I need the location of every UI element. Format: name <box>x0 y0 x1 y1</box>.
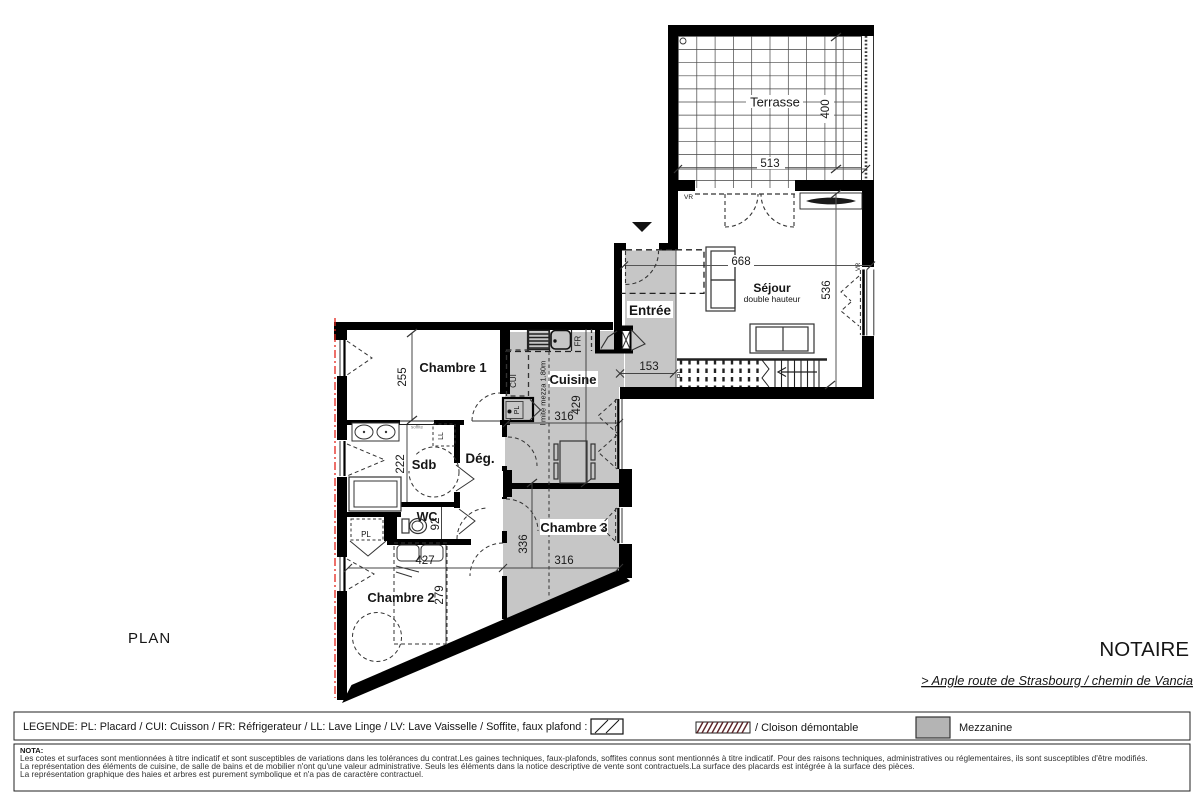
svg-text:soffite: soffite <box>411 425 423 430</box>
svg-text:> Angle route de Strasbourg /: > Angle route de Strasbourg / chemin de … <box>921 673 1193 688</box>
svg-text:536: 536 <box>821 280 833 299</box>
svg-text:Terrasse: Terrasse <box>750 95 800 110</box>
svg-text:NOTAIRE: NOTAIRE <box>1099 638 1189 661</box>
svg-text:Chambre 3: Chambre 3 <box>540 520 607 535</box>
svg-text:400: 400 <box>820 99 832 118</box>
svg-text:Séjour: Séjour <box>753 281 791 295</box>
svg-text:VR: VR <box>856 262 862 271</box>
svg-text:Cuisine: Cuisine <box>550 372 597 387</box>
svg-text:FR: FR <box>574 335 583 346</box>
svg-text:/ Cloison démontable: / Cloison démontable <box>755 722 858 734</box>
svg-text:92: 92 <box>430 518 442 531</box>
svg-text:limite mezza 1.80m: limite mezza 1.80m <box>539 361 548 426</box>
svg-text:336: 336 <box>518 534 530 553</box>
svg-text:LL: LL <box>438 432 445 440</box>
svg-text:PLAN: PLAN <box>128 630 171 647</box>
svg-text:255: 255 <box>397 367 409 386</box>
svg-text:Chambre 2: Chambre 2 <box>367 590 434 605</box>
svg-text:668: 668 <box>731 256 750 268</box>
svg-text:513: 513 <box>760 158 779 170</box>
svg-text:PL: PL <box>514 406 521 415</box>
svg-text:153: 153 <box>639 361 658 373</box>
svg-text:316: 316 <box>554 555 573 567</box>
svg-text:Chambre 1: Chambre 1 <box>419 360 486 375</box>
svg-text:429: 429 <box>571 395 583 414</box>
svg-text:PL: PL <box>361 530 371 539</box>
svg-text:double hauteur: double hauteur <box>744 294 801 304</box>
svg-text:Dég.: Dég. <box>465 451 494 466</box>
svg-text:La représentation graphique de: La représentation graphique des haies et… <box>20 769 423 779</box>
svg-text:279: 279 <box>434 585 446 604</box>
svg-text:LEGENDE: PL: Placard / CUI: C: LEGENDE: PL: Placard / CUI: Cuisson / FR… <box>23 721 587 733</box>
svg-text:427: 427 <box>415 555 434 567</box>
svg-text:Sdb: Sdb <box>412 457 437 472</box>
svg-text:PL: PL <box>677 370 684 379</box>
svg-text:CUI: CUI <box>509 374 518 388</box>
svg-text:Entrée: Entrée <box>629 303 672 318</box>
svg-text:VR: VR <box>684 194 693 201</box>
svg-text:Mezzanine: Mezzanine <box>959 722 1012 734</box>
svg-text:222: 222 <box>395 454 407 473</box>
